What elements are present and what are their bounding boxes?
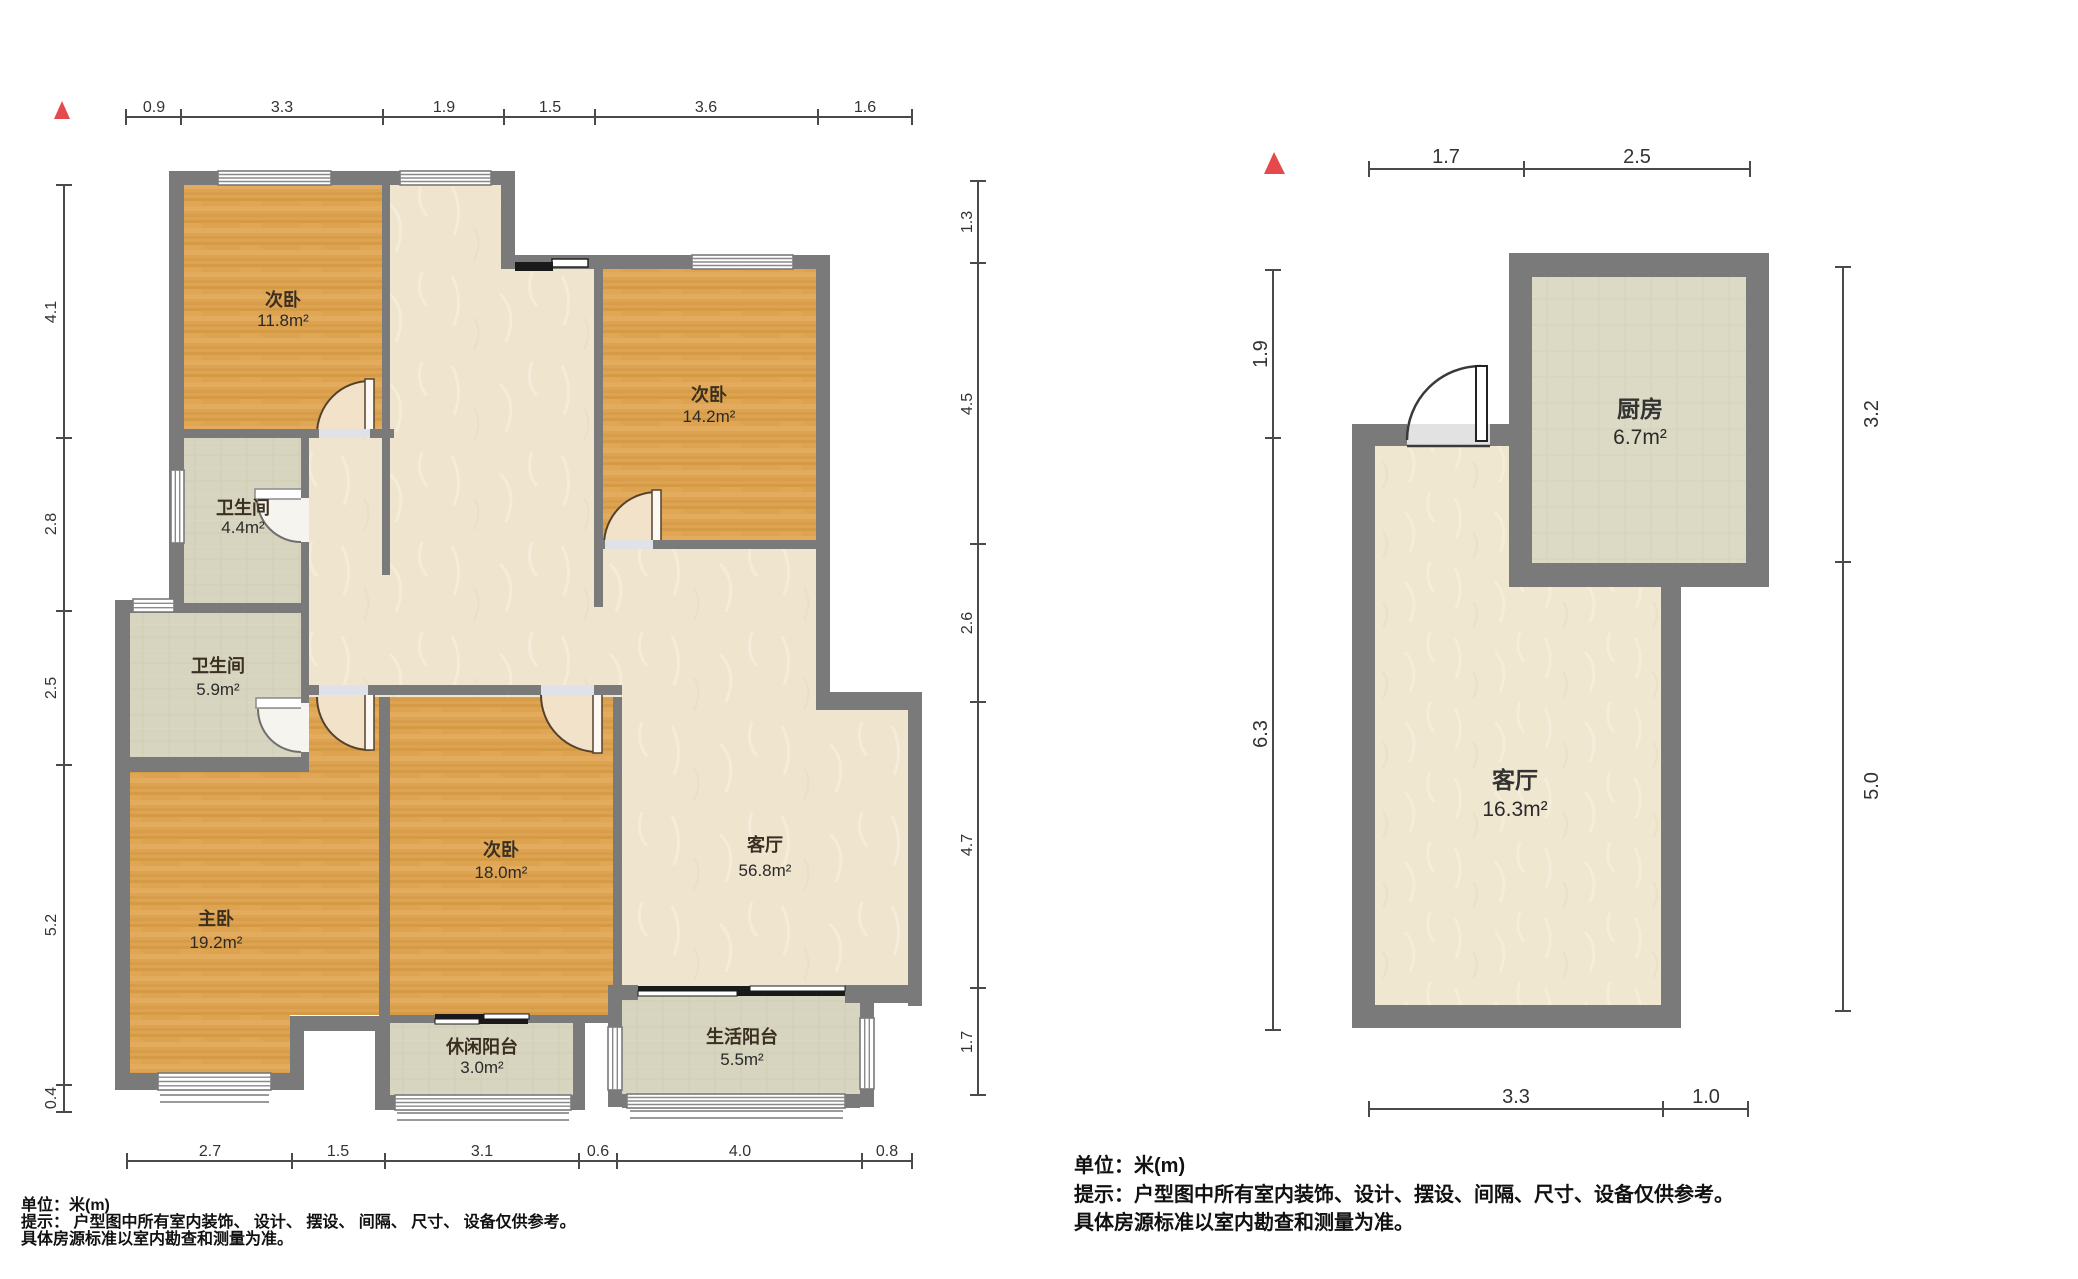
svg-text:单位：米(m): 单位：米(m)	[21, 1195, 110, 1214]
svg-text:6.7m²: 6.7m²	[1613, 426, 1667, 449]
svg-text:3.6: 3.6	[695, 99, 717, 116]
svg-text:卫生间: 卫生间	[191, 655, 245, 676]
svg-text:4.1: 4.1	[43, 301, 60, 323]
svg-text:1.0: 1.0	[1692, 1086, 1720, 1108]
svg-text:0.9: 0.9	[143, 99, 165, 116]
svg-text:18.0m²: 18.0m²	[475, 863, 528, 882]
svg-text:3.3: 3.3	[1502, 1086, 1530, 1108]
svg-text:5.2: 5.2	[43, 914, 60, 936]
svg-text:3.3: 3.3	[271, 99, 293, 116]
svg-text:提示：户型图中所有室内装饰、设计、摆设、间隔、尺寸、设备仅供: 提示：户型图中所有室内装饰、设计、摆设、间隔、尺寸、设备仅供参考。	[1074, 1182, 1734, 1206]
svg-text:5.0: 5.0	[1861, 772, 1883, 800]
svg-text:主卧: 主卧	[198, 908, 234, 929]
svg-text:2.7: 2.7	[199, 1143, 221, 1160]
svg-text:14.2m²: 14.2m²	[683, 407, 736, 426]
svg-text:2.6: 2.6	[959, 612, 976, 634]
svg-text:16.3m²: 16.3m²	[1482, 798, 1547, 821]
svg-text:1.9: 1.9	[1250, 340, 1272, 368]
svg-text:6.3: 6.3	[1250, 720, 1272, 748]
svg-text:5.9m²: 5.9m²	[196, 680, 240, 699]
svg-text:0.8: 0.8	[876, 1143, 898, 1160]
svg-text:次卧: 次卧	[483, 839, 519, 860]
svg-text:2.8: 2.8	[43, 513, 60, 535]
svg-text:2.5: 2.5	[43, 677, 60, 699]
svg-text:具体房源标准以室内勘查和测量为准。: 具体房源标准以室内勘查和测量为准。	[21, 1229, 293, 1248]
svg-text:1.7: 1.7	[959, 1031, 976, 1053]
svg-text:2.5: 2.5	[1623, 146, 1651, 168]
svg-text:提示： 户型图中所有室内装饰、 设计、 摆设、 间隔、: 提示： 户型图中所有室内装饰、 设计、 摆设、 间隔、 尺寸、 设备仅供参考。	[21, 1212, 576, 1231]
svg-text:客厅: 客厅	[1492, 767, 1538, 793]
svg-text:次卧: 次卧	[265, 289, 301, 310]
svg-text:5.5m²: 5.5m²	[720, 1050, 764, 1069]
svg-text:1.6: 1.6	[854, 99, 876, 116]
svg-text:3.1: 3.1	[471, 1143, 493, 1160]
svg-text:3.0m²: 3.0m²	[460, 1058, 504, 1077]
svg-text:11.8m²: 11.8m²	[257, 311, 309, 330]
svg-text:次卧: 次卧	[691, 384, 727, 405]
svg-text:1.3: 1.3	[959, 211, 976, 233]
svg-text:具体房源标准以室内勘查和测量为准。: 具体房源标准以室内勘查和测量为准。	[1074, 1210, 1414, 1234]
svg-text:4.4m²: 4.4m²	[221, 518, 265, 537]
svg-text:单位：米(m): 单位：米(m)	[1074, 1153, 1185, 1177]
svg-text:0.6: 0.6	[587, 1143, 609, 1160]
svg-text:4.0: 4.0	[729, 1143, 751, 1160]
svg-text:1.9: 1.9	[433, 99, 455, 116]
svg-text:厨房: 厨房	[1617, 396, 1663, 422]
svg-text:1.5: 1.5	[539, 99, 561, 116]
svg-text:56.8m²: 56.8m²	[739, 861, 792, 880]
svg-text:3.2: 3.2	[1861, 400, 1883, 428]
svg-text:卫生间: 卫生间	[216, 497, 270, 518]
svg-text:客厅: 客厅	[747, 834, 783, 855]
svg-text:生活阳台: 生活阳台	[706, 1026, 778, 1047]
svg-text:19.2m²: 19.2m²	[190, 933, 243, 952]
svg-text:4.7: 4.7	[959, 834, 976, 856]
svg-text:0.4: 0.4	[43, 1087, 60, 1109]
svg-text:4.5: 4.5	[959, 393, 976, 415]
svg-text:1.5: 1.5	[327, 1143, 349, 1160]
svg-text:休闲阳台: 休闲阳台	[445, 1036, 518, 1057]
svg-text:1.7: 1.7	[1432, 146, 1460, 168]
